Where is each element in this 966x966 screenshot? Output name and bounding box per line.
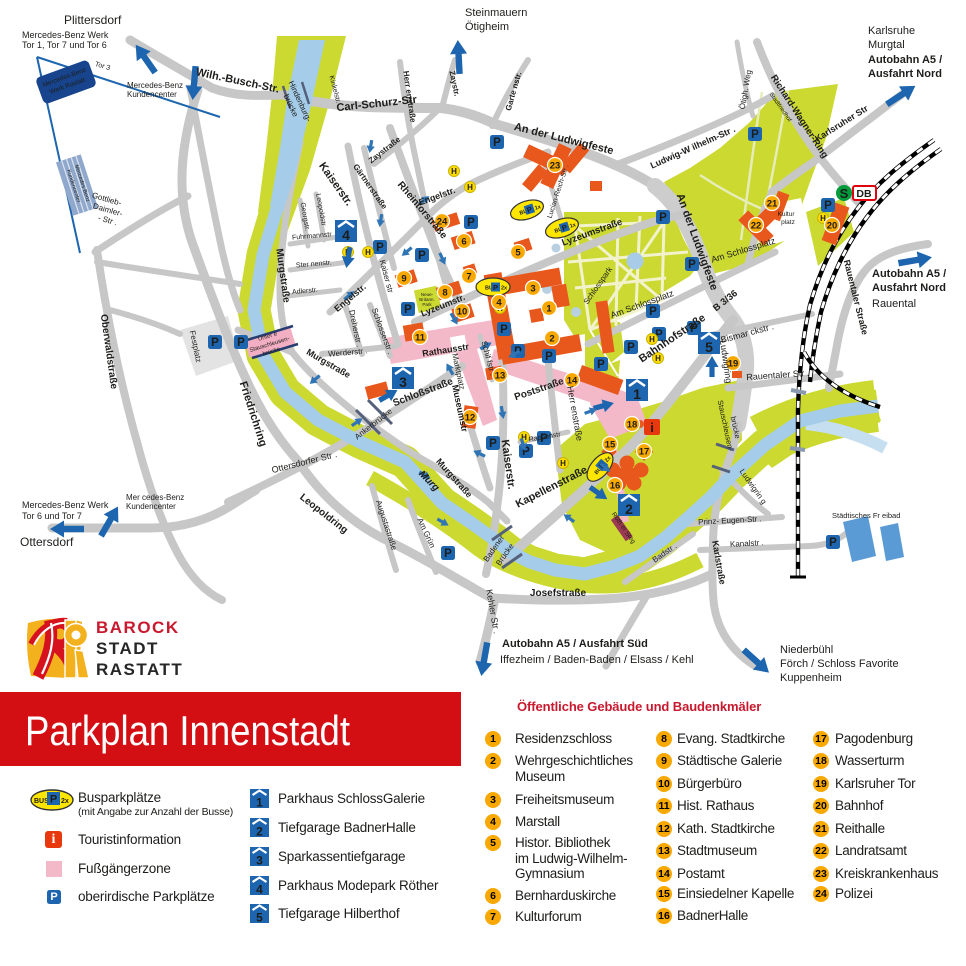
svg-text:Autobahn A5 /: Autobahn A5 / bbox=[872, 268, 946, 280]
svg-text:8: 8 bbox=[442, 288, 447, 299]
svg-text:Kundencenter: Kundencenter bbox=[126, 502, 176, 511]
svg-text:Tor 1, Tor 7 und Tor 6: Tor 1, Tor 7 und Tor 6 bbox=[22, 40, 107, 50]
svg-text:2: 2 bbox=[549, 334, 554, 345]
svg-text:5: 5 bbox=[515, 248, 521, 259]
svg-text:Autobahn A5 / Ausfahrt Süd: Autobahn A5 / Ausfahrt Süd bbox=[502, 638, 648, 650]
svg-text:16: 16 bbox=[610, 481, 621, 492]
svg-text:S: S bbox=[840, 186, 849, 201]
svg-text:2x: 2x bbox=[501, 286, 508, 292]
svg-text:Niederbühl: Niederbühl bbox=[780, 644, 833, 656]
svg-text:Rauental: Rauental bbox=[872, 298, 916, 310]
svg-text:4: 4 bbox=[342, 227, 350, 243]
svg-text:9: 9 bbox=[401, 274, 406, 285]
svg-text:1: 1 bbox=[633, 386, 641, 402]
svg-text:3: 3 bbox=[256, 854, 263, 868]
svg-text:Kuppenheim: Kuppenheim bbox=[780, 672, 842, 684]
svg-text:Ötigheim: Ötigheim bbox=[465, 21, 509, 33]
svg-text:Steinmauern: Steinmauern bbox=[465, 7, 527, 19]
svg-text:4: 4 bbox=[496, 298, 502, 309]
svg-text:Iffezheim / Baden-Baden / Elsa: Iffezheim / Baden-Baden / Elsass / Kehl bbox=[500, 654, 694, 666]
svg-text:23: 23 bbox=[550, 161, 561, 172]
svg-text:Murgtal: Murgtal bbox=[868, 39, 905, 51]
svg-text:Mercedes-Benz Werk: Mercedes-Benz Werk bbox=[22, 30, 109, 40]
svg-text:5: 5 bbox=[256, 911, 263, 925]
svg-text:2: 2 bbox=[256, 825, 263, 839]
svg-text:Förch / Schloss Favorite: Förch / Schloss Favorite bbox=[780, 658, 899, 670]
svg-text:Mer cedes-Benz: Mer cedes-Benz bbox=[126, 493, 184, 502]
svg-text:15: 15 bbox=[605, 440, 616, 451]
svg-text:Ausfahrt Nord: Ausfahrt Nord bbox=[872, 282, 946, 294]
svg-text:Tor 6 und Tor 7: Tor 6 und Tor 7 bbox=[22, 511, 82, 521]
svg-text:22: 22 bbox=[751, 221, 762, 232]
svg-text:Mercedes-Benz Werk: Mercedes-Benz Werk bbox=[22, 500, 109, 510]
svg-text:7: 7 bbox=[466, 272, 471, 283]
svg-text:20: 20 bbox=[827, 221, 838, 232]
svg-text:Kundencenter: Kundencenter bbox=[127, 90, 177, 99]
svg-text:Plittersdorf: Plittersdorf bbox=[64, 13, 122, 27]
svg-text:3: 3 bbox=[399, 374, 407, 390]
svg-text:P: P bbox=[493, 283, 498, 292]
svg-text:DB: DB bbox=[856, 188, 872, 200]
svg-text:Städtisches Fr eibad: Städtisches Fr eibad bbox=[832, 511, 900, 520]
svg-text:18: 18 bbox=[627, 420, 638, 431]
svg-text:platz: platz bbox=[781, 219, 795, 226]
svg-text:Mercedes-Benz: Mercedes-Benz bbox=[127, 81, 183, 90]
svg-text:Autobahn A5 /: Autobahn A5 / bbox=[868, 54, 942, 66]
svg-text:17: 17 bbox=[639, 447, 650, 458]
svg-text:Josefstraße: Josefstraße bbox=[530, 588, 587, 599]
svg-text:P: P bbox=[50, 794, 57, 806]
svg-text:2: 2 bbox=[625, 501, 633, 517]
svg-text:Kanalstr .: Kanalstr . bbox=[730, 538, 764, 549]
svg-text:11: 11 bbox=[415, 333, 426, 344]
svg-text:Kultur: Kultur bbox=[778, 211, 796, 218]
svg-text:Karlsruhe: Karlsruhe bbox=[868, 25, 915, 37]
svg-text:Ottersdorf: Ottersdorf bbox=[20, 535, 74, 549]
svg-text:6: 6 bbox=[461, 237, 466, 248]
svg-text:10: 10 bbox=[457, 307, 468, 318]
svg-text:Ausfahrt Nord: Ausfahrt Nord bbox=[868, 68, 942, 80]
svg-text:BUS: BUS bbox=[34, 798, 49, 805]
svg-text:i: i bbox=[650, 420, 654, 435]
svg-text:5: 5 bbox=[705, 339, 713, 355]
svg-text:Park: Park bbox=[422, 302, 432, 307]
svg-text:1: 1 bbox=[256, 796, 263, 810]
svg-text:21: 21 bbox=[767, 199, 778, 210]
svg-text:2x: 2x bbox=[61, 798, 69, 805]
svg-text:1: 1 bbox=[546, 304, 552, 315]
svg-text:3: 3 bbox=[530, 284, 535, 295]
svg-text:4: 4 bbox=[256, 883, 263, 897]
